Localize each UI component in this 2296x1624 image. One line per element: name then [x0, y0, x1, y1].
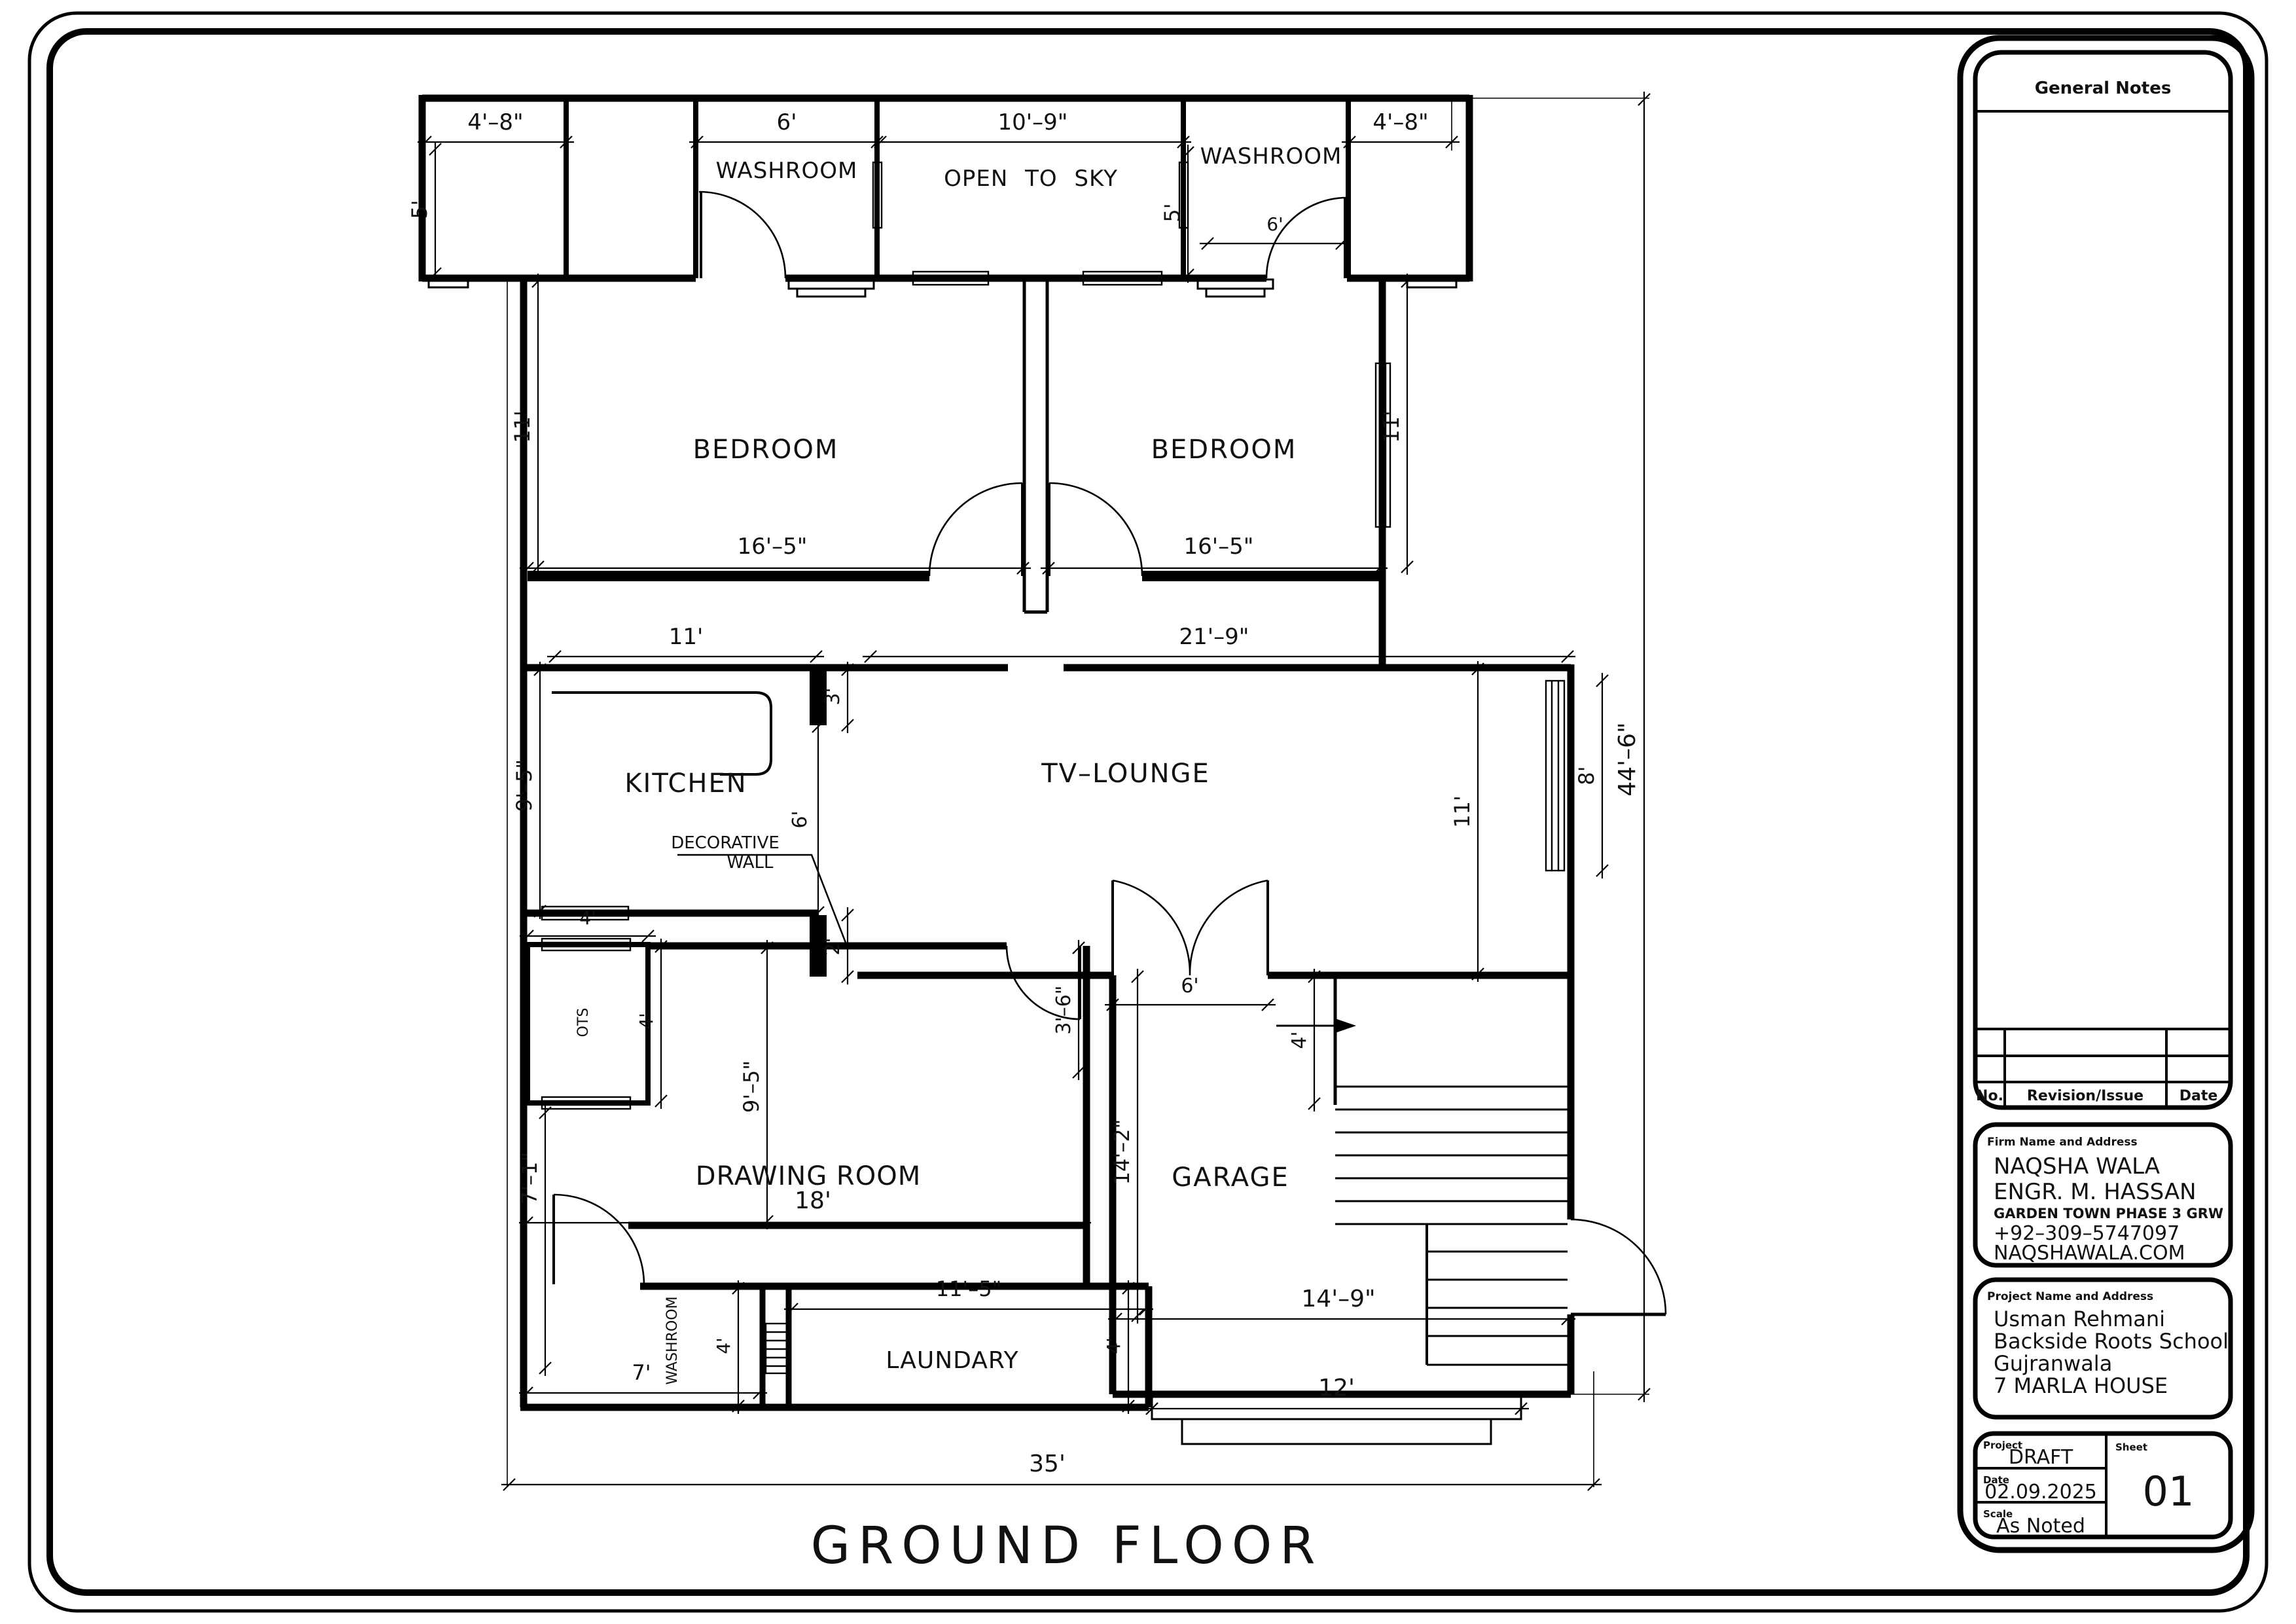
room-washroom-bottom: WASHROOM [664, 1296, 681, 1384]
dimension-text: 2' [821, 937, 844, 955]
stair-up-arrow-icon [1276, 1019, 1356, 1033]
dimension-text: 21'–9" [1179, 624, 1249, 650]
dimension-text: 11' [1450, 795, 1475, 828]
dimension-text: 4' [1103, 1337, 1124, 1354]
dimension-line [784, 1303, 1153, 1315]
door-arc-washroom-right [1266, 198, 1347, 278]
dimension-line [812, 719, 824, 920]
dimension-text: 6' [789, 810, 812, 828]
room-labels-layer: WASHROOMOPEN TO SKYWASHROOMBEDROOMBEDROO… [575, 143, 1342, 1385]
dimension-text: 11' [669, 624, 704, 650]
dimension-text: 11' [1379, 410, 1404, 443]
project-line2: Backside Roots School [1994, 1329, 2229, 1354]
room-drawing-room: DRAWING ROOM [696, 1161, 921, 1191]
dimension-text: 6' [1181, 975, 1198, 998]
dimension-line [1105, 999, 1276, 1011]
dimension-text: 7' [632, 1360, 651, 1385]
firm-name: NAQSHA WALA [1994, 1153, 2160, 1180]
dimension-text: 44'–6" [1614, 722, 1641, 796]
dimension-text: 18' [795, 1187, 831, 1214]
dimension-text: 5' [1160, 203, 1185, 222]
dimension-text: 12' [1318, 1375, 1355, 1401]
info-sheet-label: Sheet [2115, 1441, 2147, 1453]
room-washroom-top-left: WASHROOM [716, 158, 858, 184]
dimension-text: 9'–5" [739, 1060, 764, 1113]
firm-engineer: ENGR. M. HASSAN [1994, 1179, 2197, 1205]
door-arc-washroom-bottom [554, 1195, 644, 1285]
dimension-text: 11'–5" [936, 1276, 1002, 1301]
dimension-line [539, 1105, 551, 1376]
project-client: Usman Rehmani [1994, 1307, 2165, 1331]
dimension-line [1200, 238, 1350, 249]
general-notes-header: General Notes [2035, 79, 2172, 98]
dimension-line [501, 1479, 1602, 1490]
note-decorative: DECORATIVE [671, 833, 780, 853]
dimension-text: 4' [636, 1013, 657, 1030]
dimension-text: 35' [1029, 1451, 1066, 1477]
drawing-sheet: 4'–8"6'10'–9"4'–8"5'5'6'11'11'16'–5"16'–… [0, 0, 2296, 1624]
room-tv-lounge: TV–LOUNGE [1041, 759, 1210, 789]
dimension-text: 14'–2" [1109, 1119, 1134, 1185]
info-project-value: DRAFT [2009, 1446, 2073, 1469]
dimension-line [520, 930, 656, 942]
plan-walls [422, 95, 1571, 1407]
floor-plan-drawing: 4'–8"6'10'–9"4'–8"5'5'6'11'11'16'–5"16'–… [0, 0, 2296, 1624]
dimension-line [519, 1387, 767, 1399]
door-arc-bedroom-left [929, 483, 1022, 576]
room-open-to-sky: OPEN TO SKY [944, 166, 1118, 192]
room-bedroom-right: BEDROOM [1151, 435, 1297, 465]
info-date-value: 02.09.2025 [1984, 1481, 2097, 1504]
revision-table: No. Revision/Issue Date [1975, 1029, 2231, 1108]
room-garage: GARAGE [1172, 1163, 1289, 1193]
dimension-line [1342, 136, 1460, 148]
dimension-text: 16'–5" [1184, 533, 1254, 560]
dimension-text: 7'–1" [517, 1152, 542, 1204]
door-arc-washroom-left [699, 192, 785, 278]
firm-address: GARDEN TOWN PHASE 3 GRW [1994, 1206, 2223, 1221]
revision-col-no: No. [1976, 1088, 2003, 1104]
firm-box: Firm Name and Address NAQSHA WALA ENGR. … [1975, 1125, 2231, 1265]
dimension-text: 10'–9" [998, 109, 1068, 135]
dimension-text: 16'–5" [738, 533, 808, 560]
project-box: Project Name and Address Usman Rehmani B… [1975, 1280, 2231, 1417]
dimension-text: 4' [579, 907, 596, 929]
general-notes-box: General Notes No. Revision/Issue Date [1975, 52, 2231, 1108]
room-washroom-top-right: WASHROOM [1200, 143, 1342, 170]
kitchen-counter [552, 693, 771, 774]
dimension-line [872, 136, 1191, 148]
room-bedroom-left: BEDROOM [693, 435, 839, 465]
note-wall: WALL [726, 853, 774, 873]
dimension-text: 14'–9" [1301, 1286, 1375, 1312]
info-sheet-value: 01 [2143, 1468, 2195, 1515]
dimension-line [689, 136, 885, 148]
title-block: General Notes No. Revision/Issue Date Fi… [1960, 38, 2251, 1550]
dimension-line [1144, 1403, 1529, 1415]
revision-col-date: Date [2179, 1088, 2218, 1104]
project-line3: Gujranwala [1994, 1351, 2112, 1376]
steps [429, 280, 1521, 1444]
dimension-text: 3' [821, 687, 844, 705]
info-scale-value: As Noted [1996, 1515, 2085, 1538]
info-box: Project DRAFT Date 02.09.2025 Scale As N… [1975, 1434, 2231, 1538]
dimension-line [863, 651, 1575, 662]
project-label: Project Name and Address [1987, 1290, 2153, 1303]
revision-col-issue: Revision/Issue [2027, 1088, 2144, 1104]
room-laundary: LAUNDARY [886, 1347, 1018, 1374]
door-arc-double [1113, 880, 1268, 975]
dimension-text: 4'–8" [1372, 109, 1428, 135]
room-ots: OTS [575, 1008, 592, 1038]
dimension-text: 6' [1266, 213, 1283, 235]
dimension-text: 3'–6" [1052, 985, 1075, 1034]
dimension-line [418, 136, 574, 148]
door-arc-entry [1571, 1219, 1666, 1314]
dimension-text: 4'–8" [467, 109, 523, 135]
dimension-text: 9'–5" [512, 759, 537, 812]
dimension-text: 4' [713, 1337, 734, 1354]
dimension-text: 6' [777, 109, 797, 135]
dimension-text: 4' [1288, 1031, 1311, 1049]
porch-step-2 [1182, 1419, 1491, 1444]
firm-label: Firm Name and Address [1987, 1136, 2138, 1149]
dimension-text: 5' [407, 200, 432, 219]
project-line4: 7 MARLA HOUSE [1994, 1373, 2168, 1398]
dimension-line [1108, 1313, 1575, 1325]
dimension-text: 8' [1574, 766, 1599, 785]
firm-website: NAQSHAWALA.COM [1994, 1242, 2185, 1265]
door-arc-bedroom-right [1049, 483, 1142, 576]
sheet-title: GROUND FLOOR [811, 1517, 1323, 1576]
room-kitchen: KITCHEN [624, 768, 747, 799]
dimension-text: 11' [510, 410, 535, 443]
dimension-line [547, 651, 824, 662]
